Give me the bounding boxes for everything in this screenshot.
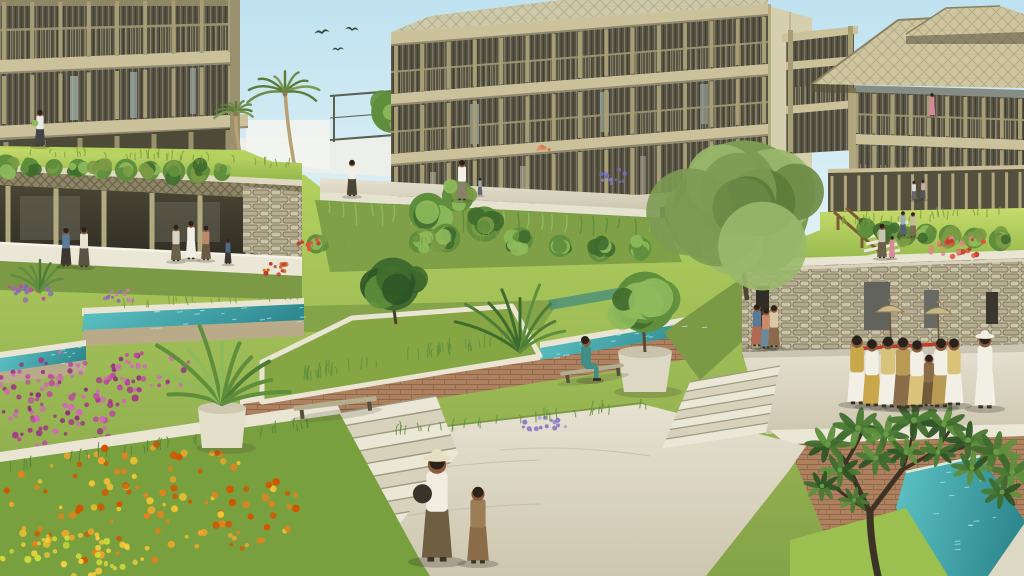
- scene-canvas: [0, 0, 1024, 576]
- architectural-rendering: [0, 0, 1024, 576]
- stone-gable: [243, 186, 302, 262]
- door-opening: [986, 292, 998, 324]
- upper-colonnade: [828, 167, 1024, 212]
